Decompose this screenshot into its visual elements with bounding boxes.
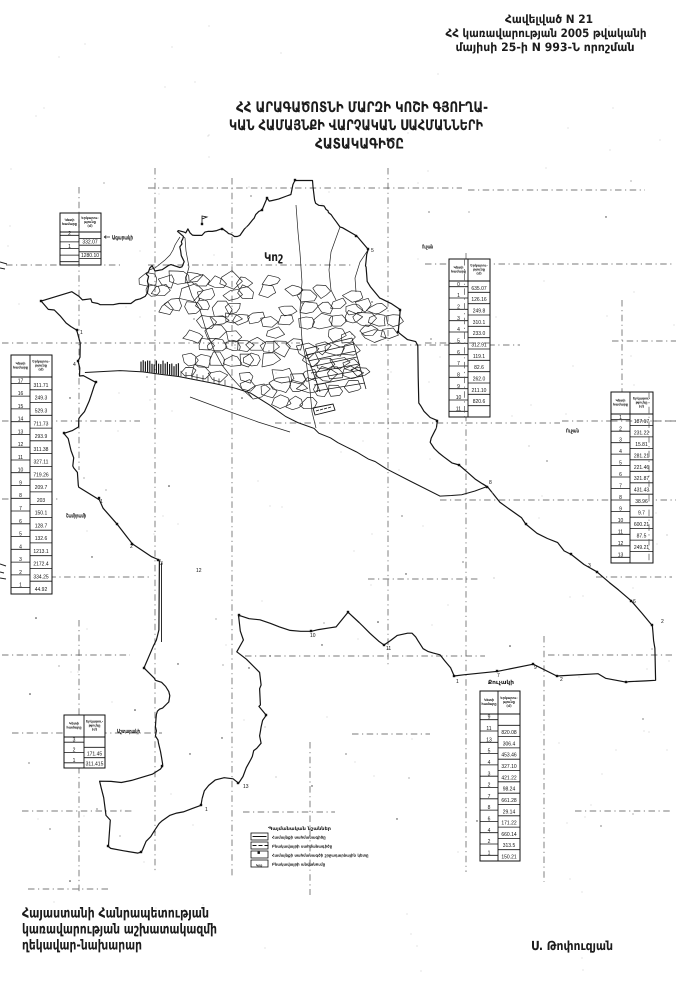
- svg-text:2: 2: [130, 544, 133, 550]
- svg-text:15: 15: [18, 404, 24, 410]
- svg-text:132.6: 132.6: [35, 536, 48, 542]
- svg-text:221.46: 221.46: [634, 465, 650, 471]
- svg-text:7: 7: [488, 794, 491, 800]
- svg-text:16: 16: [18, 391, 24, 397]
- svg-text:10: 10: [456, 395, 462, 401]
- svg-text:150.1: 150.1: [35, 511, 48, 517]
- svg-text:332.07: 332.07: [82, 240, 98, 246]
- svg-text:453.46: 453.46: [501, 753, 517, 759]
- svg-text:15.81: 15.81: [635, 442, 648, 448]
- svg-text:4: 4: [488, 760, 491, 766]
- svg-text:249.8: 249.8: [473, 309, 486, 315]
- svg-text:10: 10: [618, 518, 624, 524]
- svg-text:171.22: 171.22: [501, 821, 517, 827]
- svg-text:8: 8: [619, 495, 622, 501]
- svg-text:171.45: 171.45: [87, 751, 103, 757]
- svg-text:4: 4: [457, 327, 460, 333]
- svg-text:334.25: 334.25: [33, 574, 49, 580]
- svg-text:8: 8: [457, 372, 460, 378]
- svg-text:1: 1: [100, 499, 103, 505]
- svg-text:310.1: 310.1: [473, 320, 486, 326]
- svg-text:12: 12: [196, 568, 202, 574]
- svg-text:711.73: 711.73: [34, 421, 49, 427]
- svg-text:1213.1: 1213.1: [33, 549, 49, 555]
- svg-text:14: 14: [18, 417, 24, 423]
- svg-text:2: 2: [488, 783, 491, 789]
- svg-text:13: 13: [486, 737, 492, 743]
- svg-text:5: 5: [19, 532, 22, 538]
- svg-text:1: 1: [488, 850, 491, 856]
- svg-text:7: 7: [457, 361, 460, 367]
- svg-text:11: 11: [18, 455, 23, 461]
- svg-text:6: 6: [488, 817, 491, 823]
- svg-text:2: 2: [457, 304, 460, 310]
- svg-text:421.22: 421.22: [501, 775, 517, 781]
- svg-text:8: 8: [488, 805, 491, 811]
- svg-text:44.92: 44.92: [35, 587, 48, 593]
- svg-text:1: 1: [19, 583, 22, 589]
- svg-text:600.21: 600.21: [634, 522, 650, 528]
- svg-text:281.21: 281.21: [634, 453, 650, 459]
- svg-text:8: 8: [19, 493, 22, 499]
- svg-text:187.17: 187.17: [634, 419, 650, 425]
- svg-text:249.3: 249.3: [35, 396, 48, 402]
- svg-text:9: 9: [488, 715, 491, 721]
- svg-text:150.21: 150.21: [501, 855, 517, 861]
- svg-text:529.3: 529.3: [35, 409, 48, 415]
- svg-text:9: 9: [534, 665, 537, 671]
- svg-text:233.0: 233.0: [473, 331, 486, 337]
- svg-text:1: 1: [73, 758, 76, 764]
- svg-text:11: 11: [618, 529, 623, 535]
- svg-text:38.96: 38.96: [635, 499, 648, 505]
- svg-text:311.415: 311.415: [86, 762, 104, 768]
- svg-text:312.91: 312.91: [471, 343, 487, 349]
- svg-text:1: 1: [68, 244, 71, 250]
- svg-text:119.1: 119.1: [473, 354, 485, 360]
- svg-text:6: 6: [633, 599, 636, 605]
- svg-text:11: 11: [386, 646, 391, 652]
- svg-text:1: 1: [457, 293, 460, 299]
- svg-text:262.0: 262.0: [473, 377, 486, 383]
- svg-text:2: 2: [619, 426, 622, 432]
- svg-text:321.87: 321.87: [634, 476, 650, 482]
- svg-text:660.14: 660.14: [501, 832, 517, 838]
- svg-text:12: 12: [18, 442, 24, 448]
- svg-text:5: 5: [371, 248, 374, 254]
- svg-text:1280.10: 1280.10: [81, 253, 99, 259]
- svg-text:7: 7: [497, 673, 500, 679]
- svg-text:29.14: 29.14: [503, 809, 516, 815]
- svg-text:203: 203: [37, 498, 46, 504]
- svg-text:3: 3: [488, 771, 491, 777]
- svg-text:9: 9: [19, 481, 22, 487]
- svg-text:635.07: 635.07: [471, 286, 487, 292]
- svg-text:87.5: 87.5: [637, 534, 647, 540]
- svg-text:10: 10: [310, 633, 316, 639]
- svg-text:6: 6: [457, 350, 460, 356]
- svg-text:13: 13: [618, 552, 624, 558]
- svg-text:3: 3: [19, 557, 22, 563]
- svg-text:128.7: 128.7: [35, 523, 48, 529]
- svg-text:2: 2: [68, 231, 71, 237]
- svg-text:3: 3: [619, 438, 622, 444]
- svg-text:0: 0: [457, 282, 460, 288]
- svg-text:7: 7: [19, 506, 22, 512]
- svg-text:4: 4: [619, 449, 622, 455]
- svg-text:98.24: 98.24: [503, 787, 516, 793]
- svg-text:13: 13: [243, 784, 249, 790]
- svg-text:6: 6: [619, 472, 622, 478]
- svg-text:7: 7: [619, 484, 622, 490]
- svg-text:2: 2: [19, 570, 22, 576]
- svg-text:311.71: 311.71: [34, 383, 49, 389]
- svg-text:3: 3: [588, 563, 591, 569]
- svg-text:209.7: 209.7: [35, 485, 48, 491]
- svg-text:306.4: 306.4: [503, 741, 516, 747]
- svg-text:3: 3: [73, 737, 76, 743]
- svg-text:3: 3: [457, 316, 460, 322]
- svg-text:1: 1: [80, 330, 83, 336]
- svg-text:5: 5: [488, 749, 491, 755]
- svg-text:311.38: 311.38: [34, 447, 49, 453]
- svg-text:2172.4: 2172.4: [33, 562, 49, 568]
- svg-text:820.6: 820.6: [473, 399, 486, 405]
- svg-text:2: 2: [661, 619, 664, 625]
- svg-text:13: 13: [18, 429, 24, 435]
- svg-text:719.26: 719.26: [33, 472, 49, 478]
- svg-text:820.08: 820.08: [501, 730, 517, 736]
- svg-text:2: 2: [488, 839, 491, 845]
- svg-text:12: 12: [618, 541, 624, 547]
- svg-text:231.22: 231.22: [634, 430, 650, 436]
- svg-text:249.21: 249.21: [634, 545, 650, 551]
- svg-text:4: 4: [19, 544, 22, 550]
- svg-text:313.5: 313.5: [503, 843, 516, 849]
- svg-text:661.28: 661.28: [501, 798, 517, 804]
- svg-text:9.7: 9.7: [638, 511, 645, 517]
- svg-text:293.9: 293.9: [35, 434, 48, 440]
- svg-text:1: 1: [205, 807, 208, 813]
- svg-text:1: 1: [456, 679, 459, 685]
- svg-text:82.6: 82.6: [474, 365, 484, 371]
- svg-text:9: 9: [457, 384, 460, 390]
- svg-text:327.10: 327.10: [501, 764, 517, 770]
- svg-text:4: 4: [488, 828, 491, 834]
- svg-text:211.10: 211.10: [472, 388, 487, 394]
- svg-text:8: 8: [489, 480, 492, 486]
- svg-text:2: 2: [560, 677, 563, 683]
- svg-text:2: 2: [73, 748, 76, 754]
- svg-text:11: 11: [486, 726, 491, 732]
- svg-text:126.16: 126.16: [471, 297, 487, 303]
- svg-text:11: 11: [456, 406, 461, 412]
- svg-text:4: 4: [73, 362, 76, 368]
- svg-text:5: 5: [619, 461, 622, 467]
- svg-text:17: 17: [18, 378, 24, 384]
- svg-text:5: 5: [457, 338, 460, 344]
- svg-text:3: 3: [160, 561, 163, 567]
- svg-text:1: 1: [619, 415, 622, 421]
- svg-text:431.43: 431.43: [634, 488, 650, 494]
- svg-text:9: 9: [619, 507, 622, 513]
- svg-text:10: 10: [18, 468, 24, 474]
- svg-text:327.11: 327.11: [34, 460, 49, 466]
- svg-text:6: 6: [19, 519, 22, 525]
